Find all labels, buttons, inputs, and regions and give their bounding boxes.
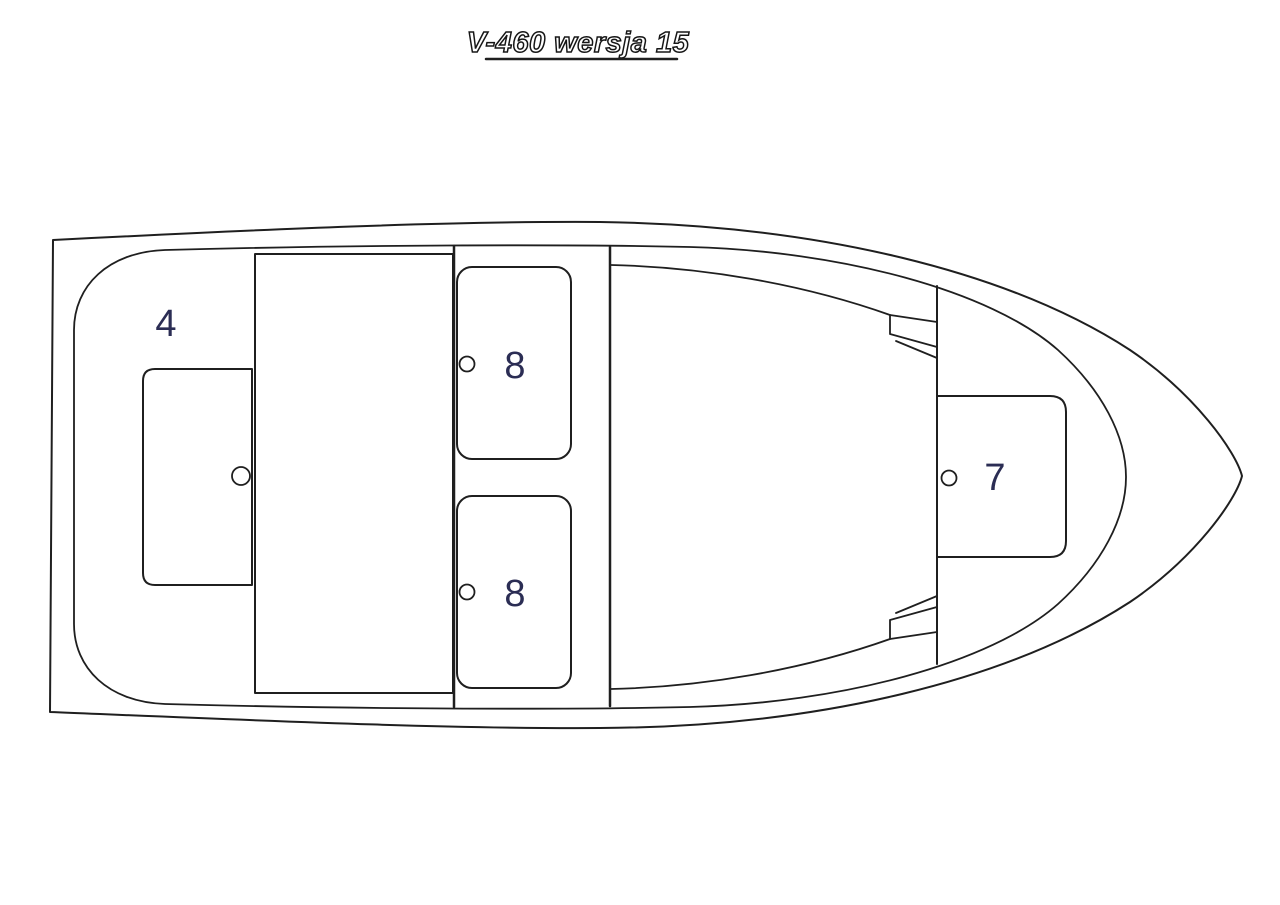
title-block: V-460 wersja 15 [467,27,690,59]
midship-seat-bottom-hole [460,585,475,600]
bow-seat-hole [942,471,957,486]
boat-plan-drawing: V-460 wersja 15 [0,0,1280,905]
stern-hatch-finger-hole [232,467,250,485]
outer-hull-outline [50,222,1242,728]
label-midship-seat-bottom: 8 [504,573,525,615]
midship-seat-top-hole [460,357,475,372]
bracket-bottom [890,596,937,639]
label-stern-storage: 4 [155,303,176,345]
stern-platform [255,254,453,693]
stern-area-group [143,254,453,693]
boat-plan-svg: V-460 wersja 15 [0,0,1280,905]
label-midship-seat-top: 8 [504,345,525,387]
label-bow-seat: 7 [984,457,1005,499]
cockpit-coaming-group [611,265,937,689]
coaming-bottom-edge [611,639,890,689]
bracket-top [890,315,937,358]
labels-group: 4 8 8 7 [155,303,1005,615]
coaming-top-edge [611,265,890,315]
midship-bench-group [454,246,610,707]
hull-group [50,222,1242,728]
drawing-title: V-460 wersja 15 [467,27,690,59]
